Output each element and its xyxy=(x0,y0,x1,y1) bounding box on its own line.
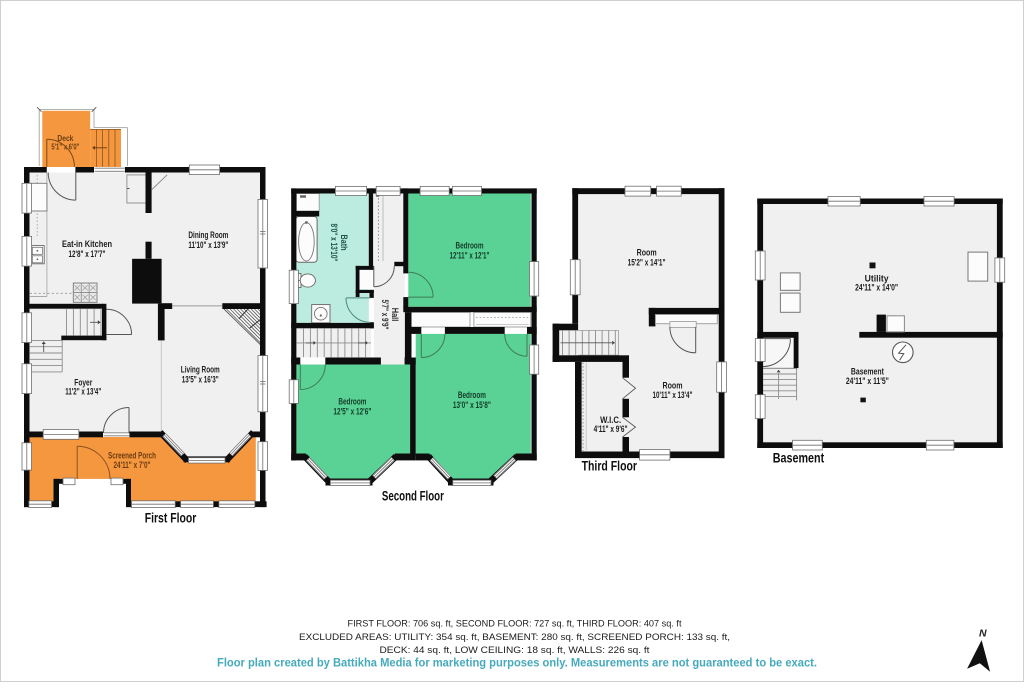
svg-text:Bedroom: Bedroom xyxy=(458,390,486,400)
svg-text:Room: Room xyxy=(637,248,657,258)
svg-text:Bedroom: Bedroom xyxy=(338,397,366,407)
svg-text:Living Room: Living Room xyxy=(181,365,220,375)
svg-text:N: N xyxy=(979,627,987,639)
svg-text:Basement: Basement xyxy=(773,451,825,466)
svg-text:Third Floor: Third Floor xyxy=(582,458,638,473)
svg-text:Room: Room xyxy=(663,380,683,390)
svg-text:Second Floor: Second Floor xyxy=(382,489,445,504)
svg-text:12'5" x 12'6": 12'5" x 12'6" xyxy=(333,406,371,416)
svg-text:DECK: 44 sq. ft, LOW CEILING:: DECK: 44 sq. ft, LOW CEILING: 18 sq. ft,… xyxy=(380,645,651,655)
svg-text:13'5" x 16'3": 13'5" x 16'3" xyxy=(182,374,219,384)
svg-text:EXCLUDED AREAS: UTILITY: 354 s: EXCLUDED AREAS: UTILITY: 354 sq. ft, BAS… xyxy=(299,632,730,642)
svg-text:Floor plan created by Battikha: Floor plan created by Battikha Media for… xyxy=(217,655,817,669)
svg-text:Eat-in Kitchen: Eat-in Kitchen xyxy=(62,239,112,249)
svg-text:4'11" x 9'6": 4'11" x 9'6" xyxy=(594,424,628,434)
svg-text:13'0" x 15'8": 13'0" x 15'8" xyxy=(453,400,491,410)
svg-text:5'7" x 9'9": 5'7" x 9'9" xyxy=(380,300,390,330)
svg-text:24'11" x 11'5": 24'11" x 11'5" xyxy=(846,376,889,386)
svg-text:11'10" x 13'9": 11'10" x 13'9" xyxy=(188,240,228,250)
svg-text:Basement: Basement xyxy=(851,366,884,376)
svg-text:Bedroom: Bedroom xyxy=(456,240,484,250)
svg-text:10'11" x 13'4": 10'11" x 13'4" xyxy=(653,390,693,400)
svg-text:11'2" x 13'4": 11'2" x 13'4" xyxy=(65,387,101,397)
svg-text:Bath: Bath xyxy=(339,235,349,251)
svg-text:12'8" x 17'7": 12'8" x 17'7" xyxy=(69,249,106,259)
svg-text:First Floor: First Floor xyxy=(145,511,197,526)
svg-text:FIRST FLOOR: 706 sq. ft, SECON: FIRST FLOOR: 706 sq. ft, SECOND FLOOR: 7… xyxy=(348,619,683,629)
svg-text:Hall: Hall xyxy=(390,308,400,322)
svg-text:24'11" x 7'0": 24'11" x 7'0" xyxy=(114,460,151,470)
svg-text:24'11" x 14'0": 24'11" x 14'0" xyxy=(855,283,898,293)
svg-text:12'11" x 12'1": 12'11" x 12'1" xyxy=(450,250,490,260)
svg-text:15'2" x 14'1": 15'2" x 14'1" xyxy=(628,257,666,267)
svg-text:8'0" x 13'10": 8'0" x 13'10" xyxy=(329,224,339,262)
svg-text:Dining Room: Dining Room xyxy=(188,230,228,240)
